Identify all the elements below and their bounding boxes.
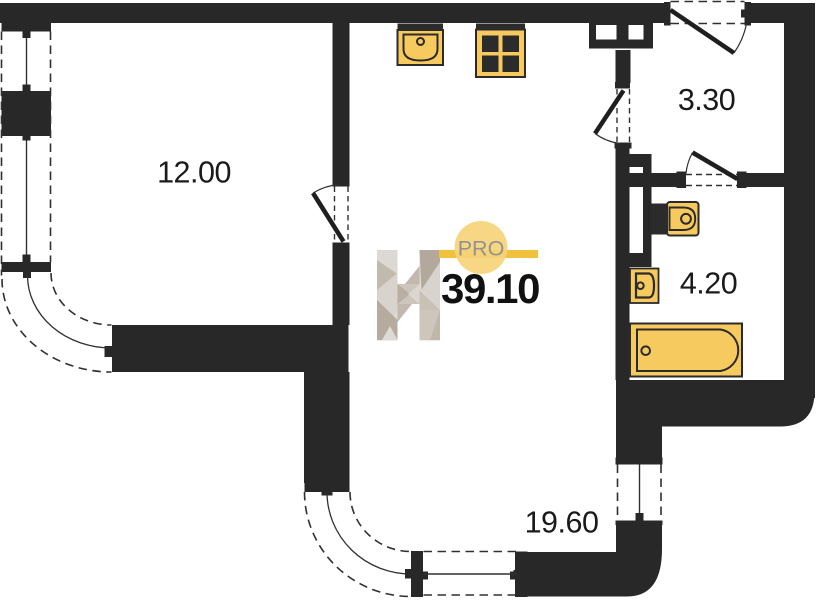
- svg-text:4.20: 4.20: [680, 267, 737, 301]
- svg-text:12.00: 12.00: [157, 156, 231, 190]
- svg-text:19.60: 19.60: [525, 506, 599, 540]
- svg-text:PRO: PRO: [458, 237, 505, 261]
- svg-text:39.10: 39.10: [441, 265, 539, 312]
- svg-text:3.30: 3.30: [678, 83, 735, 117]
